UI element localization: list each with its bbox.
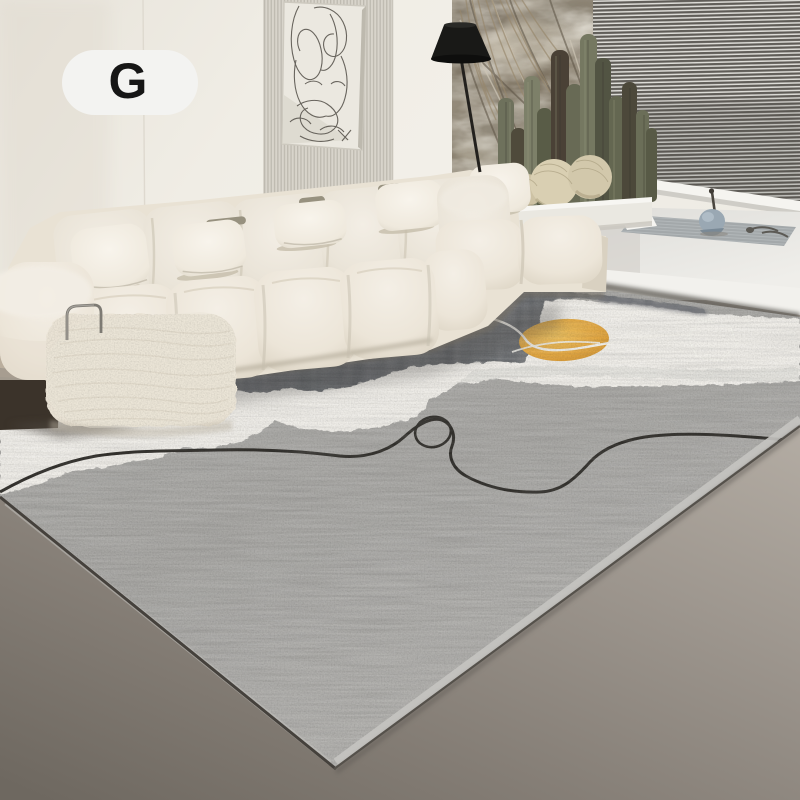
- svg-text:G: G: [109, 53, 148, 109]
